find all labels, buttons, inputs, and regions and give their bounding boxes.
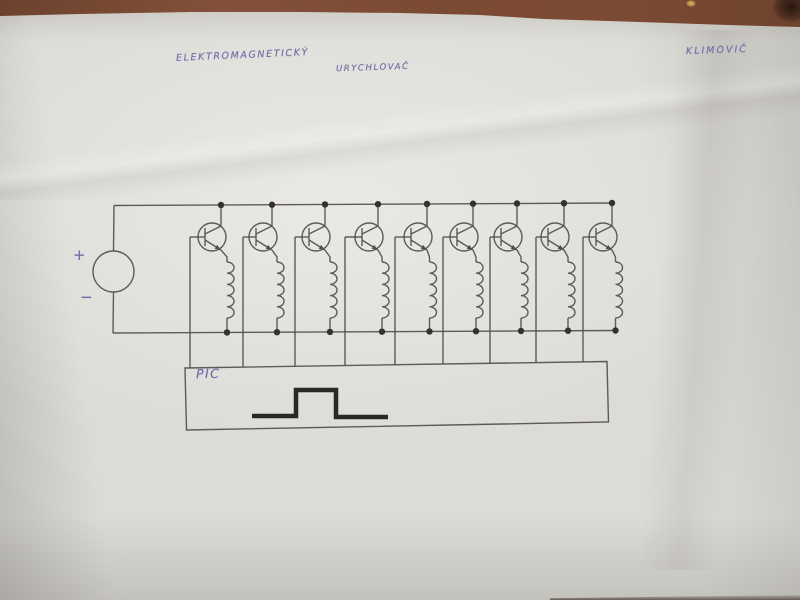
top-rail-junction-dot <box>470 201 476 207</box>
coil-9 <box>616 262 623 318</box>
bottom-rail-junction-dot <box>565 328 571 334</box>
emitter-wire <box>221 250 227 262</box>
emitter-wire <box>517 250 521 262</box>
emitter-wire <box>564 250 568 262</box>
bottom-rail-junction-dot <box>274 329 280 335</box>
voltage-source <box>93 251 134 292</box>
bottom-rail-junction-dot <box>379 328 385 334</box>
emitter-arrowhead <box>215 245 221 250</box>
bottom-rail-junction-dot <box>327 329 333 335</box>
emitter-wire <box>325 250 330 262</box>
transistor-collector-stroke <box>411 226 427 234</box>
top-rail-junction-dot <box>561 200 567 206</box>
emitter-arrowhead <box>467 245 473 250</box>
emitter-arrowhead <box>372 245 378 250</box>
top-rail-junction-dot <box>514 200 520 206</box>
transistor-collector-stroke <box>309 226 325 234</box>
emitter-wire <box>378 250 382 262</box>
source-top-lead <box>114 206 115 252</box>
emitter-arrowhead <box>558 245 564 250</box>
emitter-arrowhead <box>421 245 427 250</box>
top-rail-junction-dot <box>322 201 328 207</box>
emitter-wire <box>427 250 430 262</box>
coil-5 <box>430 262 437 318</box>
coil-6 <box>476 262 483 318</box>
pic-controller-box <box>185 362 609 431</box>
emitter-arrowhead <box>606 245 612 250</box>
emitter-wire <box>612 250 616 262</box>
emitter-wire <box>473 250 476 262</box>
bottom-rail-junction-dot <box>518 328 524 334</box>
circuit-schematic <box>0 0 800 600</box>
transistor-collector-stroke <box>362 226 378 234</box>
emitter-arrowhead <box>266 245 272 250</box>
bottom-rail-junction-dot <box>426 328 432 334</box>
pulse-waveform <box>252 390 388 417</box>
pic-label: PIC <box>196 366 221 381</box>
top-supply-rail <box>114 203 613 206</box>
bottom-supply-rail <box>113 331 616 334</box>
transistor-collector-stroke <box>205 226 221 234</box>
coil-2 <box>277 262 284 318</box>
top-rail-junction-dot <box>609 200 615 206</box>
source-bottom-lead <box>113 292 114 333</box>
author-signature: KLIMOVIČ <box>686 44 748 57</box>
emitter-arrowhead <box>319 245 325 250</box>
coil-4 <box>382 262 389 318</box>
source-minus-label: − <box>80 288 93 306</box>
transistor-collector-stroke <box>548 226 564 234</box>
emitter-arrowhead <box>511 245 517 250</box>
top-rail-junction-dot <box>375 201 381 207</box>
coil-1 <box>227 262 234 318</box>
top-rail-junction-dot <box>269 202 275 208</box>
coil-3 <box>330 262 337 318</box>
top-rail-junction-dot <box>424 201 430 207</box>
bottom-rail-junction-dot <box>473 328 479 334</box>
transistor-collector-stroke <box>501 226 517 234</box>
bottom-rail-junction-dot <box>612 327 618 333</box>
transistor-collector-stroke <box>457 226 473 234</box>
photo-of-schematic: { "photo": { "description": "Photograph … <box>0 0 800 600</box>
emitter-wire <box>272 250 277 262</box>
transistor-collector-stroke <box>256 226 272 234</box>
bottom-rail-junction-dot <box>224 329 230 335</box>
coil-7 <box>521 262 528 318</box>
source-plus-label: + <box>73 246 86 264</box>
transistor-collector-stroke <box>596 226 612 234</box>
coil-8 <box>568 262 575 318</box>
top-rail-junction-dot <box>218 202 224 208</box>
